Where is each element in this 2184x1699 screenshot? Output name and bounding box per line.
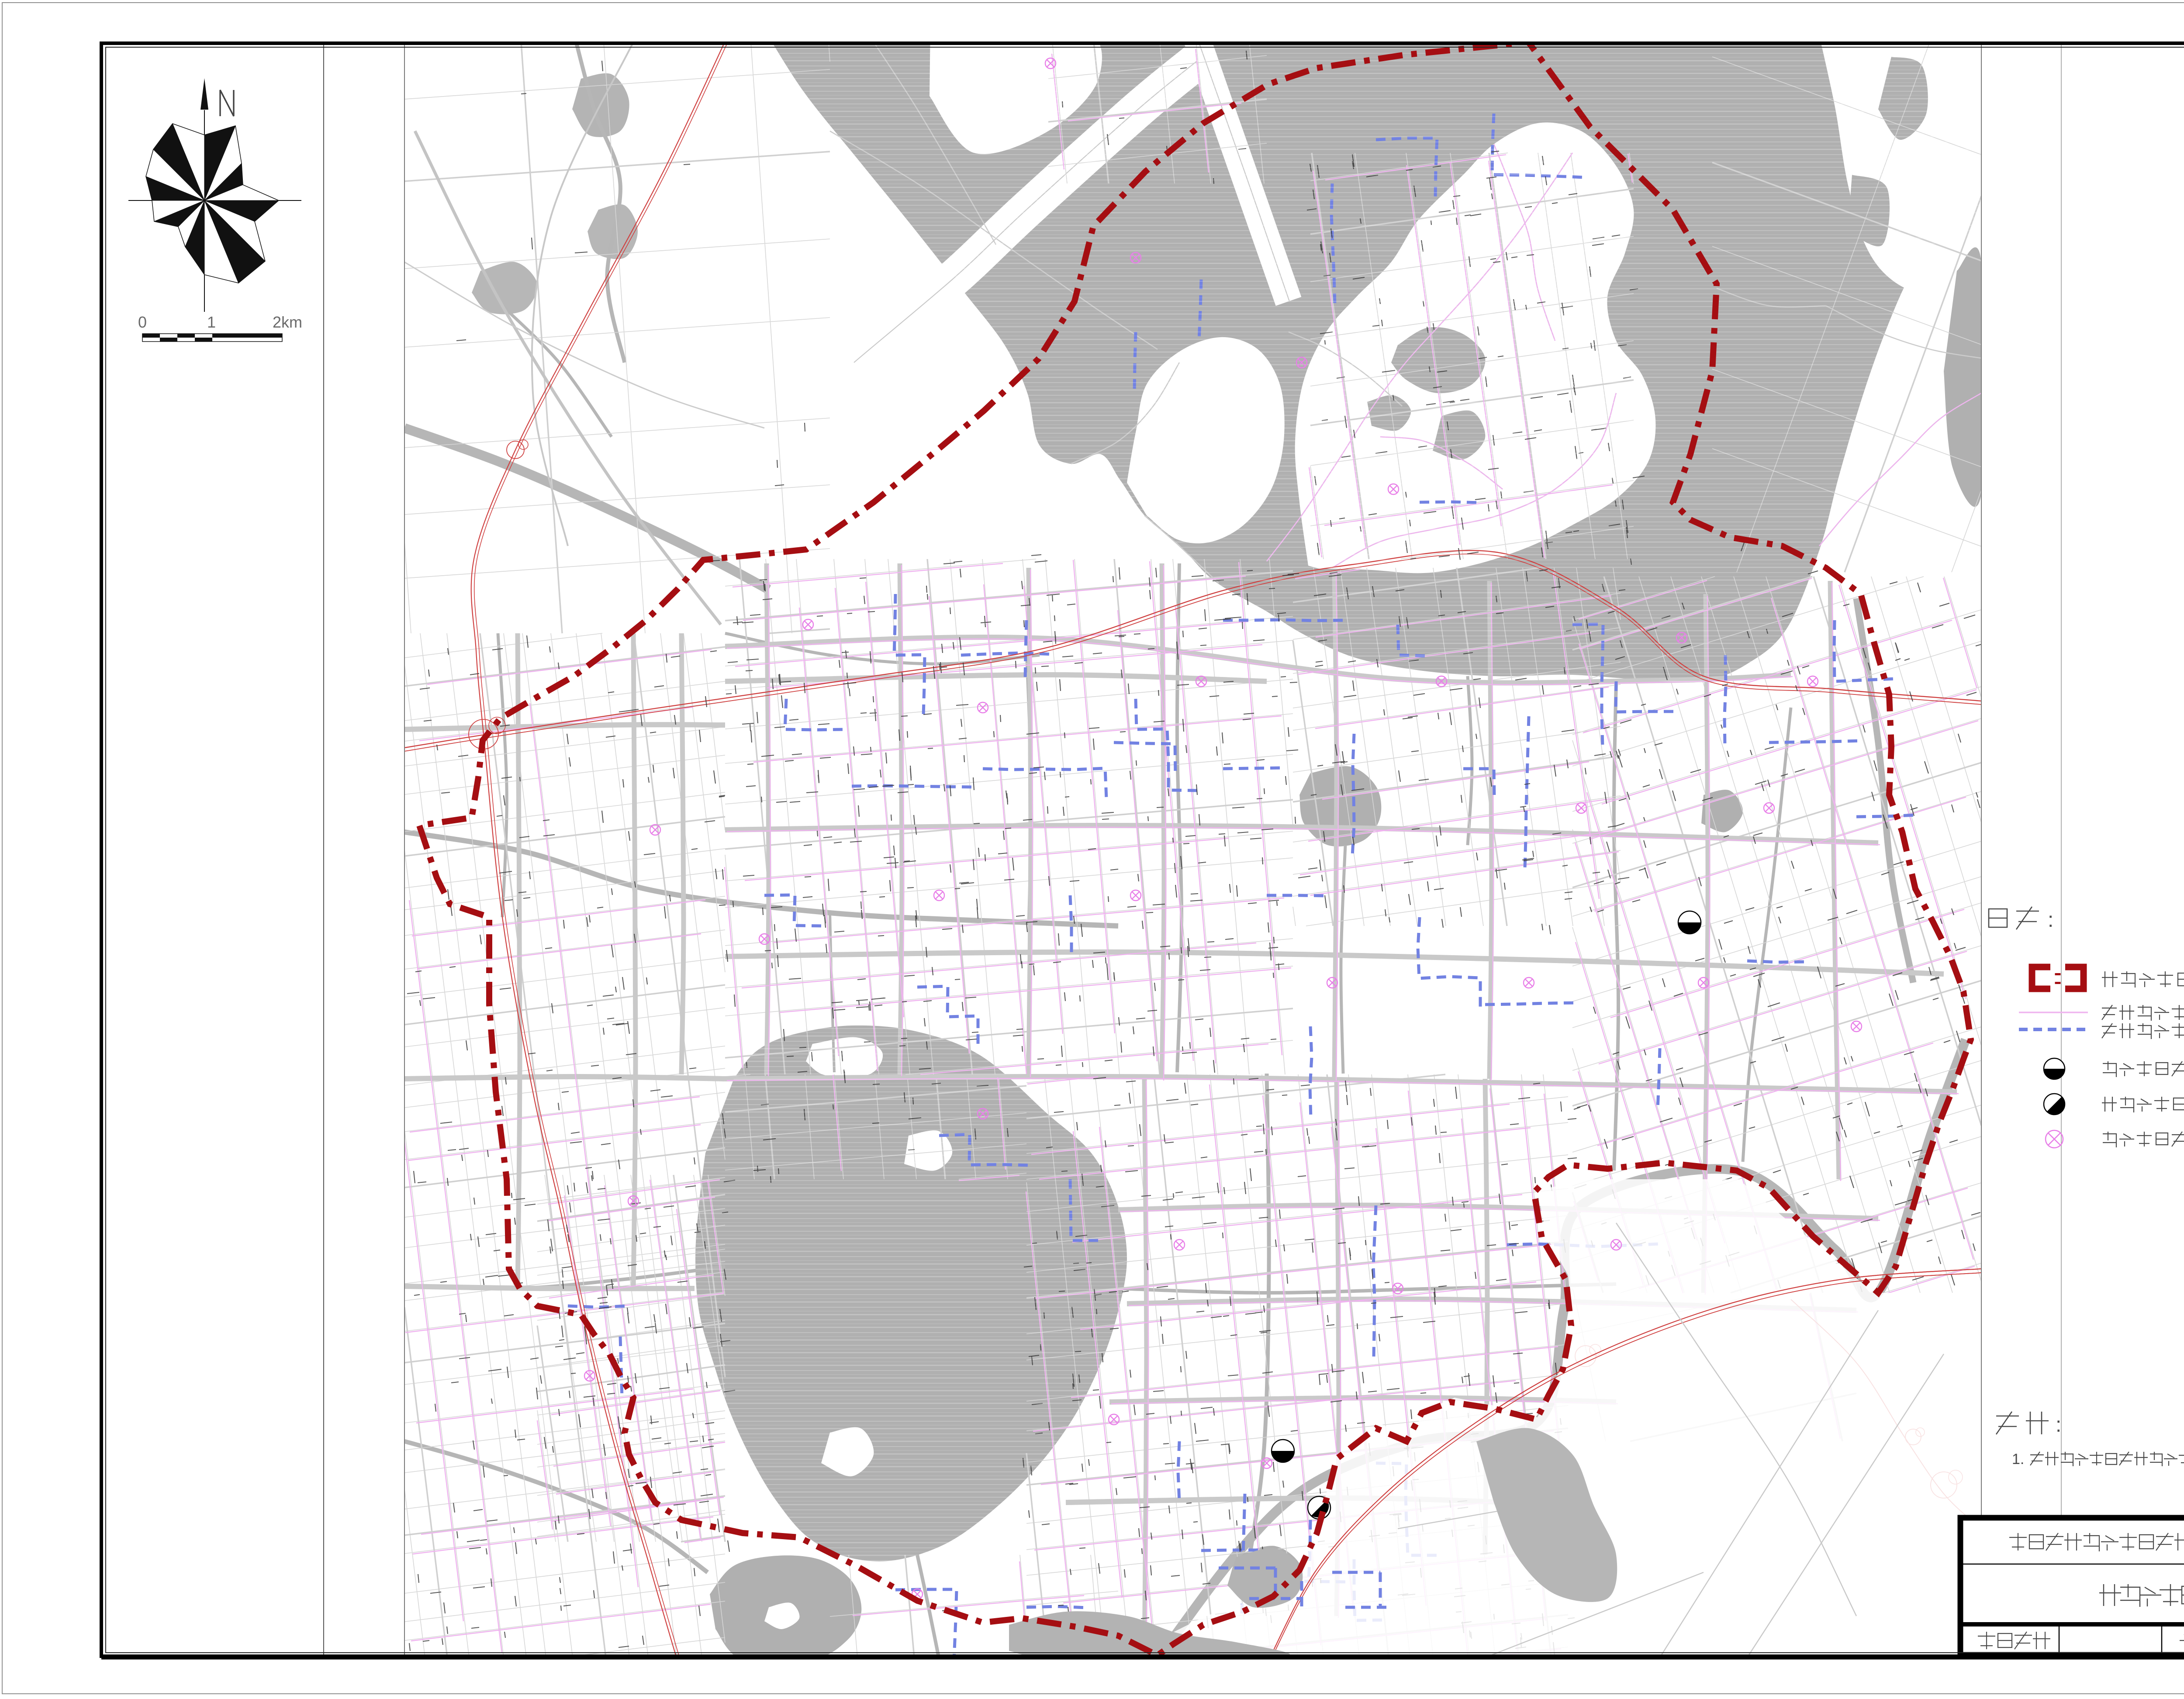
svg-text:1.: 1. bbox=[2012, 1451, 2024, 1468]
svg-text:1: 1 bbox=[207, 313, 216, 331]
svg-text:0: 0 bbox=[138, 313, 147, 331]
svg-text:2km: 2km bbox=[273, 313, 302, 331]
svg-text::: : bbox=[2048, 908, 2053, 932]
svg-text::: : bbox=[2056, 1413, 2061, 1437]
